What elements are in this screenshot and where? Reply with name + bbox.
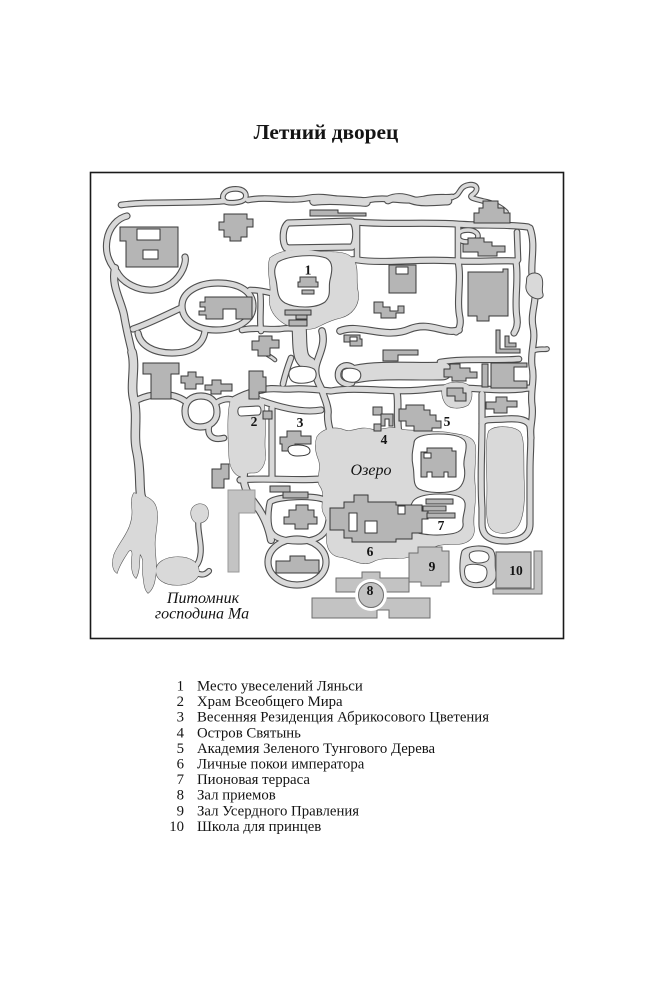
svg-text:5: 5 xyxy=(444,414,451,429)
svg-text:10: 10 xyxy=(169,819,184,835)
svg-text:Пионовая терраса: Пионовая терраса xyxy=(197,772,310,788)
svg-text:Питомник: Питомник xyxy=(166,590,240,607)
svg-text:Храм Всеобщего Мира: Храм Всеобщего Мира xyxy=(197,694,343,710)
svg-text:4: 4 xyxy=(177,725,185,741)
svg-text:Зал Усердного Правления: Зал Усердного Правления xyxy=(197,803,359,819)
svg-text:10: 10 xyxy=(509,563,523,578)
svg-text:9: 9 xyxy=(429,559,436,574)
svg-text:7: 7 xyxy=(438,518,445,533)
svg-text:3: 3 xyxy=(177,710,184,726)
svg-text:Школа для принцев: Школа для принцев xyxy=(197,819,321,835)
svg-text:Летний дворец: Летний дворец xyxy=(254,120,399,144)
svg-text:1: 1 xyxy=(177,679,184,695)
svg-text:Академия Зеленого Тунгового Де: Академия Зеленого Тунгового Дерева xyxy=(197,741,436,757)
svg-text:6: 6 xyxy=(177,757,184,773)
svg-text:5: 5 xyxy=(177,741,184,757)
svg-text:Весенняя Резиденция Абрикосово: Весенняя Резиденция Абрикосового Цветени… xyxy=(197,710,489,726)
svg-text:Личные покои императора: Личные покои императора xyxy=(197,757,365,773)
svg-text:Место увеселений Ляньси: Место увеселений Ляньси xyxy=(197,679,363,695)
svg-text:7: 7 xyxy=(177,772,184,788)
svg-text:2: 2 xyxy=(177,694,184,710)
svg-text:Зал приемов: Зал приемов xyxy=(197,788,276,804)
svg-text:8: 8 xyxy=(367,583,374,598)
svg-text:4: 4 xyxy=(381,432,388,447)
svg-text:9: 9 xyxy=(177,803,184,819)
svg-text:3: 3 xyxy=(297,415,304,430)
svg-text:господина Ма: господина Ма xyxy=(155,606,249,623)
svg-text:Остров Святынь: Остров Святынь xyxy=(197,725,301,741)
svg-text:6: 6 xyxy=(367,544,374,559)
svg-text:Озеро: Озеро xyxy=(351,462,392,479)
svg-text:2: 2 xyxy=(251,414,258,429)
svg-text:1: 1 xyxy=(305,263,312,278)
svg-text:8: 8 xyxy=(177,788,184,804)
